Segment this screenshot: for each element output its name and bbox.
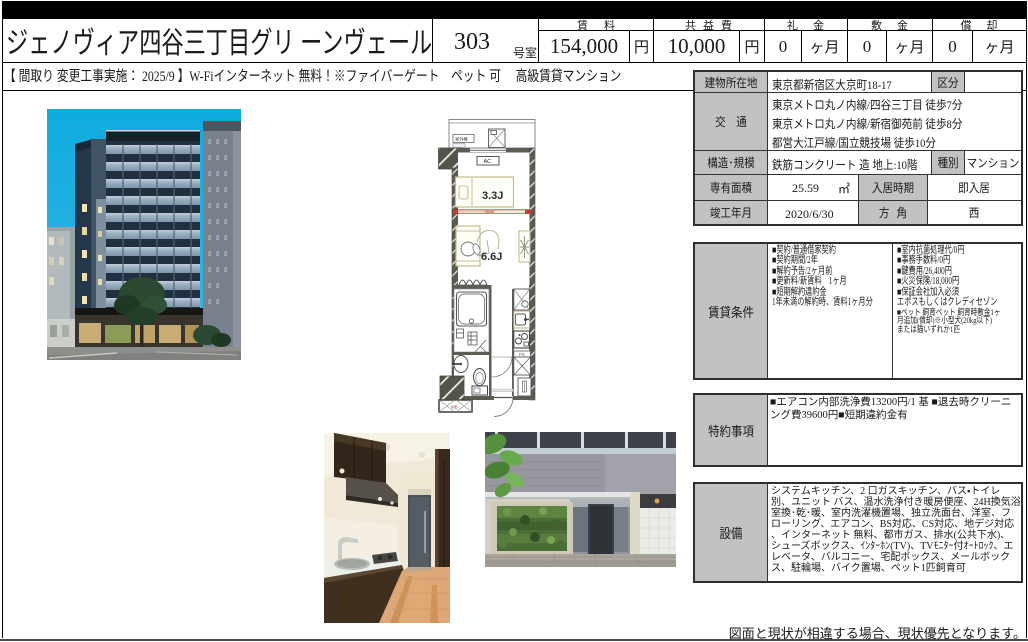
svg-text:MB: MB	[451, 405, 458, 410]
svg-text:AC: AC	[484, 159, 492, 165]
svg-text:室外機: 室外機	[455, 136, 468, 143]
svg-text:6.6J: 6.6J	[481, 251, 502, 263]
svg-text:PS: PS	[519, 352, 525, 357]
svg-text:3.3J: 3.3J	[482, 190, 503, 202]
